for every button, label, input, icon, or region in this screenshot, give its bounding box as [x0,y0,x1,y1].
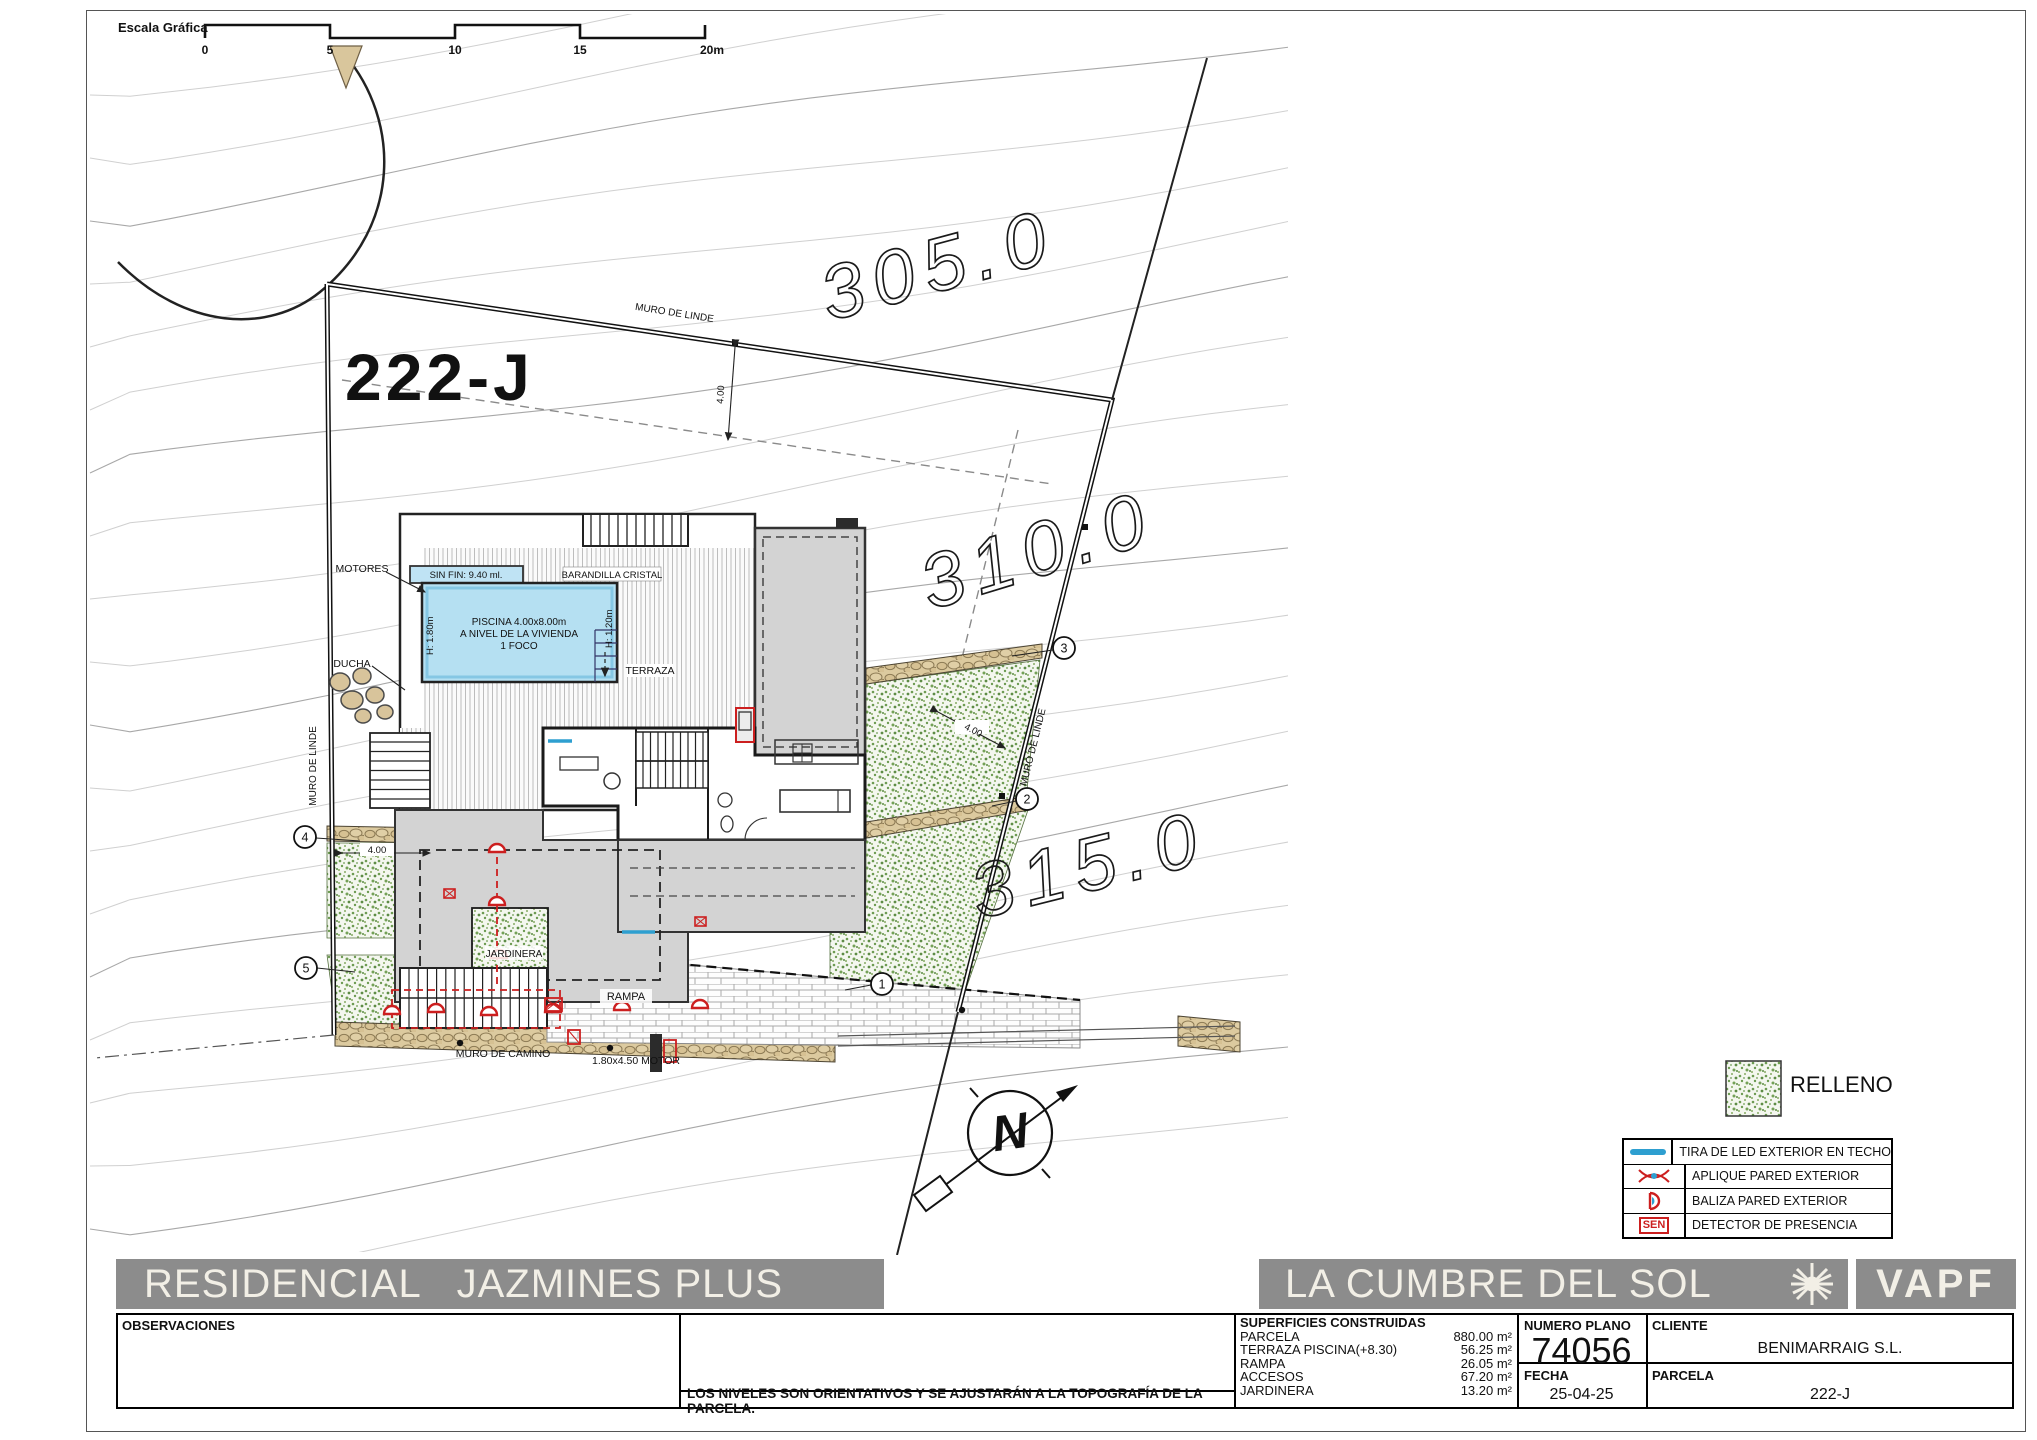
legend-row-led: TIRA DE LED EXTERIOR EN TECHO [1624,1140,1891,1165]
observaciones-label: OBSERVACIONES [122,1318,235,1333]
svg-text:15: 15 [573,43,587,57]
ducha-label: DUCHA [333,658,370,670]
svg-text:20m: 20m [700,43,724,57]
motor-label: 1.80x4.50 MOTOR [592,1055,680,1067]
location-title-bar: LA CUMBRE DEL SOL [1259,1259,1780,1309]
pool-line2: A NIVEL DE LA VIVIENDA [460,629,578,640]
north-letter: N [988,1102,1032,1163]
svg-text:2: 2 [1024,793,1031,807]
svg-text:5: 5 [327,43,334,57]
dim-top-label: 4.00 [715,385,727,404]
superficies-row: PARCELA880.00 m² [1240,1330,1512,1344]
svg-text:5: 5 [303,962,310,976]
pool-h-right: H: 1.20m [604,609,615,648]
superficies-table: SUPERFICIES CONSTRUIDAS PARCELA880.00 m²… [1240,1316,1512,1397]
fecha-value: 25-04-25 [1517,1386,1646,1404]
parcela-value: 222-J [1646,1386,2014,1404]
fecha-label: FECHA [1524,1368,1569,1383]
svg-text:4: 4 [302,831,309,845]
roof-upper [755,528,865,757]
terraza-label: TERRAZA [625,665,674,677]
superficies-header: SUPERFICIES CONSTRUIDAS [1240,1316,1512,1330]
motores-label: MOTORES [336,563,389,575]
cliente-value: BENIMARRAIG S.L. [1646,1340,2014,1358]
rampa-label: RAMPA [607,991,646,1003]
north-arrow-icon: N [914,1085,1078,1211]
parcel-number-label: 222-J [345,340,534,414]
superficies-row: TERRAZA PISCINA(+8.30)56.25 m² [1240,1343,1512,1357]
levels-note: LOS NIVELES SON ORIENTATIVOS Y SE AJUSTA… [679,1390,1234,1409]
pool-barandilla-label: BARANDILLA CRISTAL [562,570,663,581]
dim-left-label: 4.00 [368,845,387,856]
svg-text:3: 3 [1061,642,1068,656]
scale-bar: 0 5 10 15 20m [0,0,760,64]
pool-sinfin-label: SIN FIN: 9.40 ml. [430,570,503,581]
legend-row-baliza: BALIZA PARED EXTERIOR [1624,1189,1891,1214]
legend-table: TIRA DE LED EXTERIOR EN TECHO APLIQUE PA… [1622,1138,1893,1239]
muro-linde-top-label: MURO DE LINDE [634,302,715,325]
svg-text:0: 0 [202,43,209,57]
sun-icon [1787,1261,1837,1307]
svg-text:305.0: 305.0 [811,193,1065,337]
superficies-row: JARDINERA13.20 m² [1240,1384,1512,1398]
vapf-logo: VAPF [1856,1259,2016,1309]
superficies-row: RAMPA26.05 m² [1240,1357,1512,1371]
cliente-label: CLIENTE [1652,1318,1708,1333]
plan-sheet: SIN FIN: 9.40 ml. BARANDILLA CRISTAL PIS… [0,0,2037,1440]
legend-row-aplique: APLIQUE PARED EXTERIOR [1624,1165,1891,1190]
superficies-row: ACCESOS67.20 m² [1240,1370,1512,1384]
jardinera-label: JARDINERA [486,949,543,960]
pool-line1: PISCINA 4.00x8.00m [472,617,567,628]
numero-plano-value: 74056 [1517,1330,1646,1372]
relleno-swatch [1725,1060,1782,1117]
svg-text:1: 1 [879,978,886,992]
project-title: RESIDENCIAL JAZMINES PLUS [144,1262,783,1307]
led-strip-icon [1624,1140,1673,1164]
pool-line3: 1 FOCO [500,641,537,652]
muro-linde-left-label: MURO DE LINDE [308,726,319,806]
project-title-bar: RESIDENCIAL JAZMINES PLUS [116,1259,884,1309]
aplique-icon [1624,1165,1686,1189]
muro-camino-label: MURO DE CAMINO [456,1048,551,1060]
ducha-rocks [330,668,393,723]
svg-text:310.0: 310.0 [910,475,1165,627]
vapf-sun-logo [1776,1259,1848,1309]
parcela-label: PARCELA [1652,1368,1714,1383]
presence-detector-icon: SEN [1624,1214,1686,1238]
pool-h-left: H: 1.80m [425,616,436,655]
svg-text:10: 10 [448,43,462,57]
relleno-label: RELLENO [1790,1072,1893,1098]
legend-row-sen: SEN DETECTOR DE PRESENCIA [1624,1214,1891,1238]
baliza-icon [1624,1189,1686,1213]
location-title: LA CUMBRE DEL SOL [1285,1262,1712,1307]
